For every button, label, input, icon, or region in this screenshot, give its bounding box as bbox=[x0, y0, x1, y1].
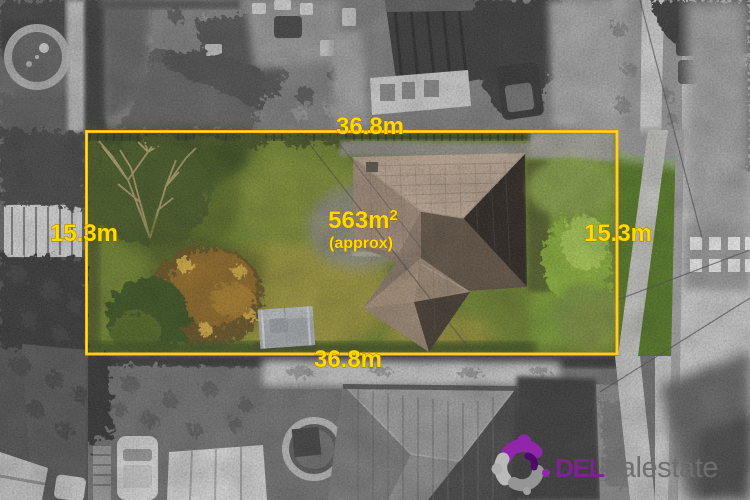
svg-text:15.3m: 15.3m bbox=[50, 220, 118, 247]
svg-text:DEL: DEL bbox=[555, 453, 605, 483]
svg-text:36.8m: 36.8m bbox=[314, 346, 382, 373]
svg-text:(approx): (approx) bbox=[329, 235, 393, 252]
svg-text:36.8m: 36.8m bbox=[336, 113, 404, 140]
svg-text:15.3m: 15.3m bbox=[584, 220, 652, 247]
svg-text:563m2: 563m2 bbox=[328, 207, 398, 234]
svg-text:ealestate: ealestate bbox=[604, 452, 718, 484]
